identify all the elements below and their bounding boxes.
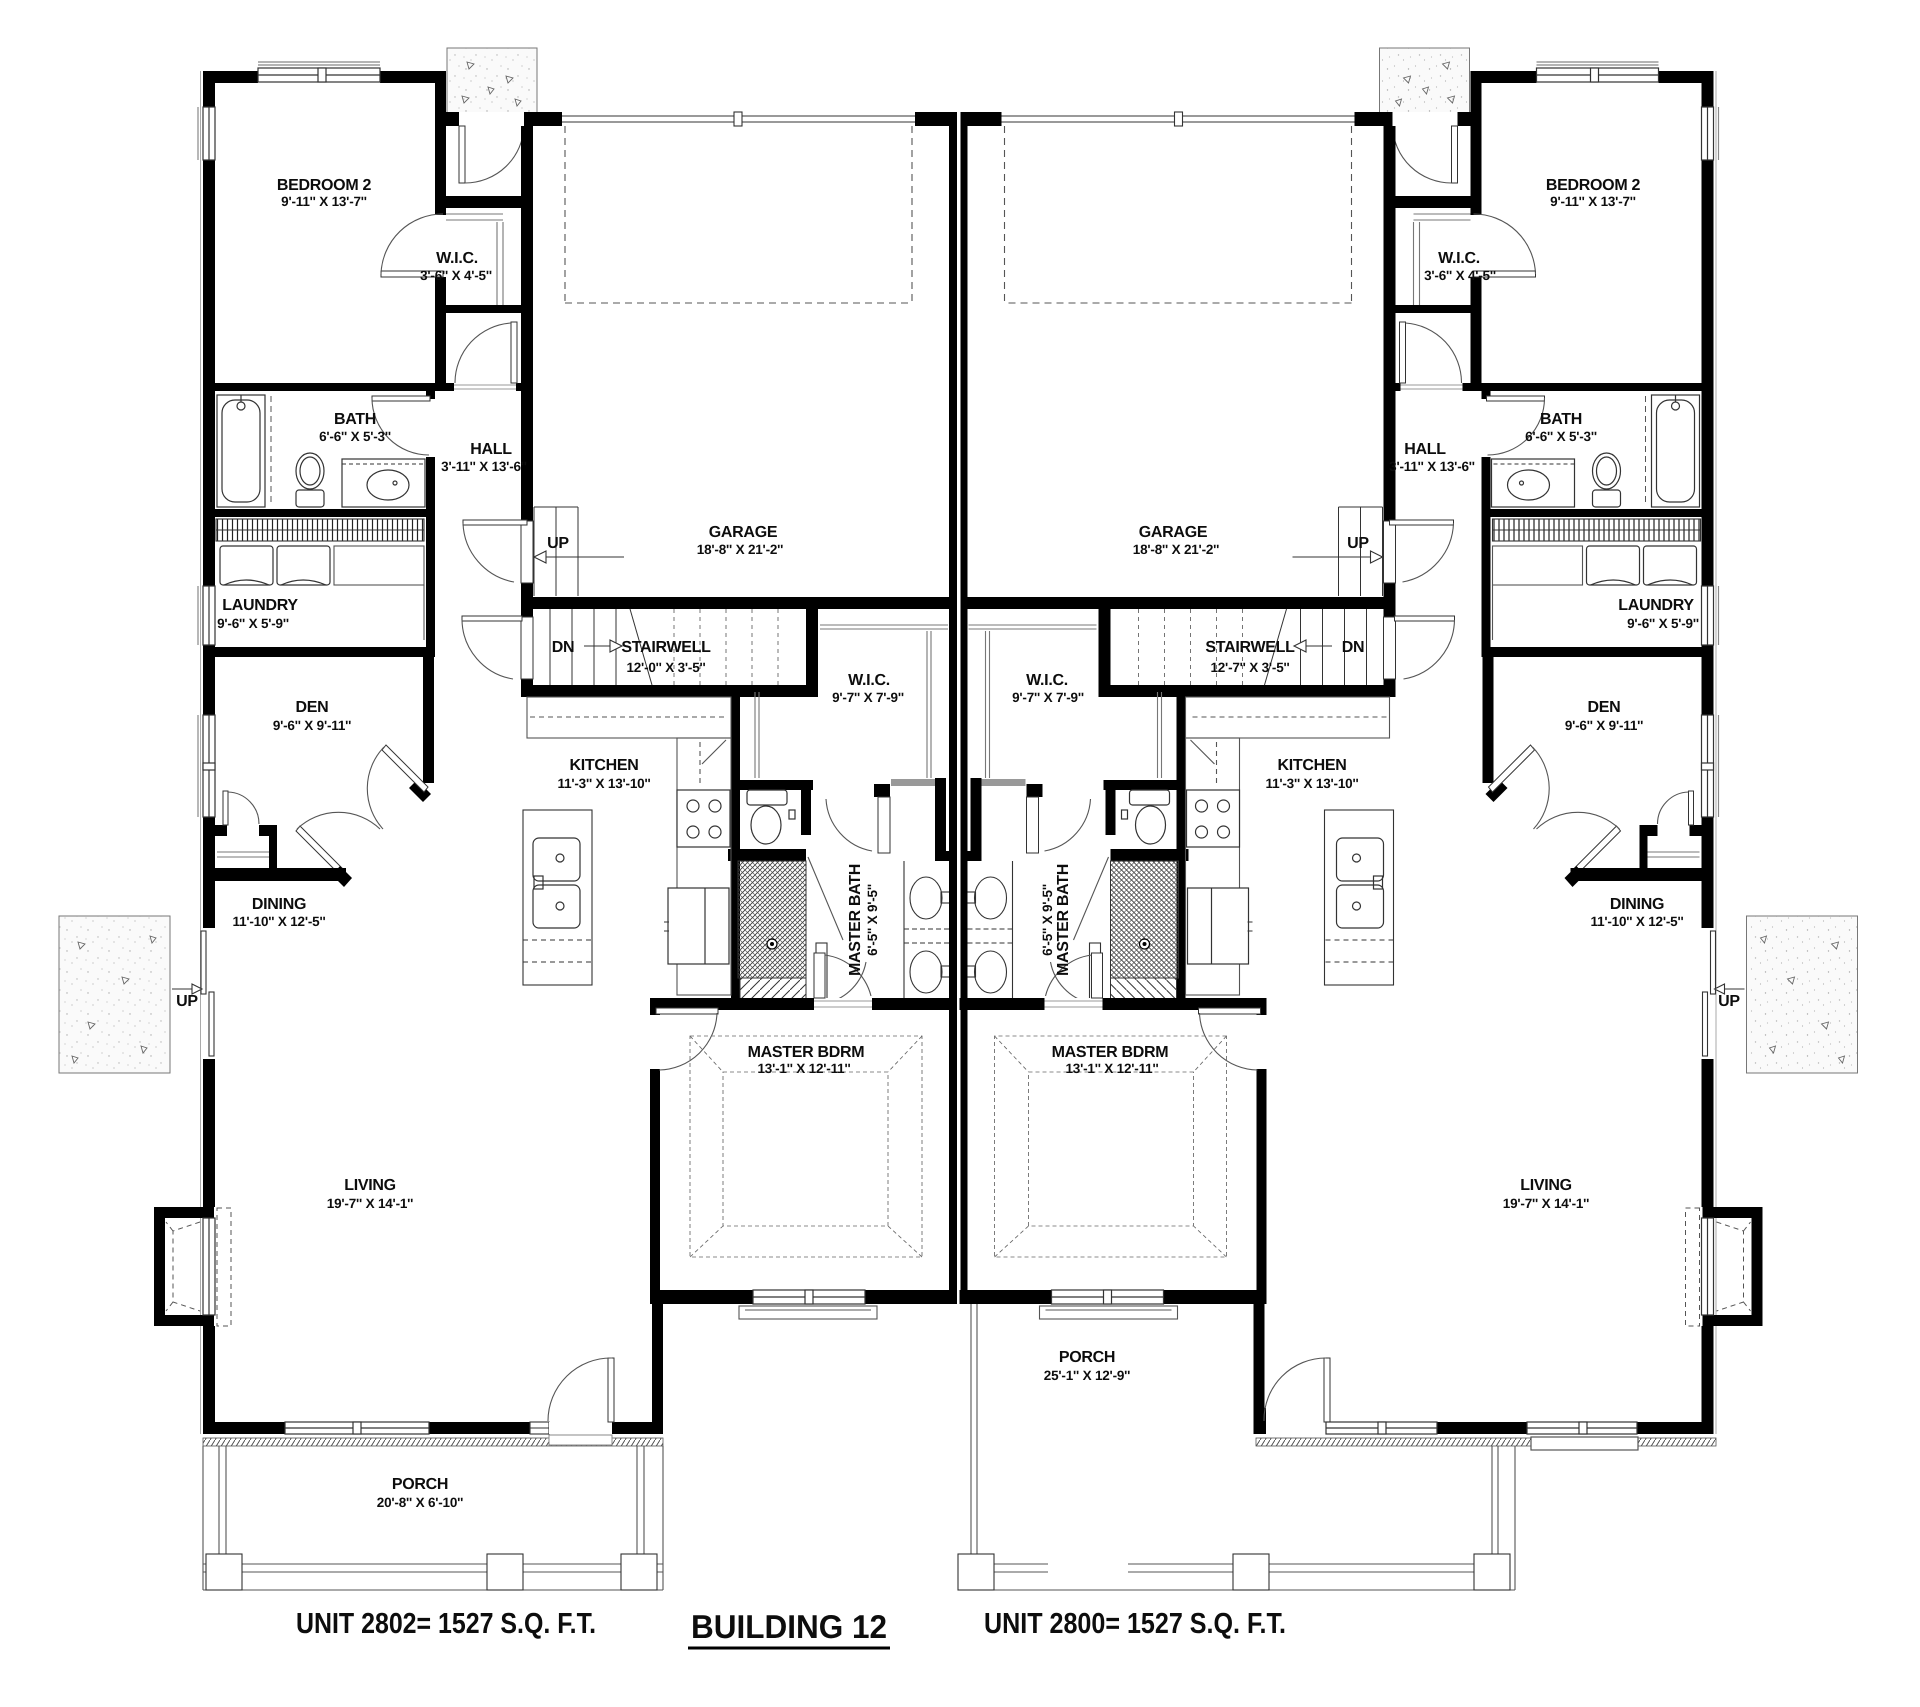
svg-text:9'-6'' X 5'-9'': 9'-6'' X 5'-9'': [1627, 616, 1699, 631]
svg-text:DN: DN: [552, 639, 575, 656]
svg-text:UP: UP: [1718, 993, 1740, 1010]
svg-text:W.I.C.: W.I.C.: [848, 672, 890, 689]
svg-text:MASTER BDRM: MASTER BDRM: [1052, 1044, 1169, 1061]
svg-text:18'-8'' X 21'-2'': 18'-8'' X 21'-2'': [1133, 542, 1219, 557]
svg-text:STAIRWELL: STAIRWELL: [621, 639, 711, 656]
svg-text:19'-7'' X 14'-1'': 19'-7'' X 14'-1'': [327, 1196, 413, 1211]
svg-text:UNIT 2802= 1527 S.Q. F.T.: UNIT 2802= 1527 S.Q. F.T.: [296, 1608, 596, 1640]
svg-text:11'-3'' X 13'-10'': 11'-3'' X 13'-10'': [558, 776, 651, 791]
svg-text:9'-11'' X 13'-7'': 9'-11'' X 13'-7'': [1550, 194, 1636, 209]
svg-text:MASTER BATH: MASTER BATH: [1055, 864, 1072, 976]
svg-text:UNIT 2800= 1527 S.Q. F.T.: UNIT 2800= 1527 S.Q. F.T.: [984, 1608, 1286, 1640]
svg-text:MASTER BATH: MASTER BATH: [847, 864, 864, 976]
svg-text:KITCHEN: KITCHEN: [1277, 757, 1346, 774]
svg-text:PORCH: PORCH: [1059, 1349, 1115, 1366]
svg-text:UP: UP: [547, 535, 569, 552]
svg-text:18'-8'' X 21'-2'': 18'-8'' X 21'-2'': [697, 542, 783, 557]
svg-text:6'-5'' X 9'-5'': 6'-5'' X 9'-5'': [1040, 884, 1055, 956]
svg-text:25'-1'' X 12'-9'': 25'-1'' X 12'-9'': [1044, 1368, 1130, 1383]
svg-text:UP: UP: [176, 993, 198, 1010]
svg-text:6'-5'' X 9'-5'': 6'-5'' X 9'-5'': [865, 884, 880, 956]
svg-text:11'-10'' X 12'-5'': 11'-10'' X 12'-5'': [233, 914, 326, 929]
svg-text:12'-0'' X 3'-5'': 12'-0'' X 3'-5'': [626, 660, 705, 675]
svg-text:12'-7'' X 3'-5'': 12'-7'' X 3'-5'': [1210, 660, 1289, 675]
svg-text:W.I.C.: W.I.C.: [436, 250, 478, 267]
svg-text:LAUNDRY: LAUNDRY: [1618, 597, 1694, 614]
svg-text:MASTER BDRM: MASTER BDRM: [748, 1044, 865, 1061]
svg-text:DEN: DEN: [296, 699, 329, 716]
svg-text:UP: UP: [1347, 535, 1369, 552]
svg-text:BEDROOM 2: BEDROOM 2: [1546, 177, 1641, 194]
svg-text:3'-11'' X 13'-6'': 3'-11'' X 13'-6'': [441, 459, 527, 474]
svg-text:STAIRWELL: STAIRWELL: [1205, 639, 1295, 656]
svg-text:GARAGE: GARAGE: [709, 524, 778, 541]
svg-text:9'-6'' X 9'-11'': 9'-6'' X 9'-11'': [273, 718, 351, 733]
svg-text:9'-6'' X 9'-11'': 9'-6'' X 9'-11'': [1565, 718, 1643, 733]
svg-text:3'-11'' X 13'-6'': 3'-11'' X 13'-6'': [1389, 459, 1475, 474]
svg-text:BATH: BATH: [1540, 411, 1582, 428]
svg-text:9'-7'' X 7'-9'': 9'-7'' X 7'-9'': [832, 690, 904, 705]
svg-text:6'-6'' X 5'-3'': 6'-6'' X 5'-3'': [1525, 429, 1597, 444]
svg-text:LAUNDRY: LAUNDRY: [222, 597, 298, 614]
svg-text:KITCHEN: KITCHEN: [569, 757, 638, 774]
svg-text:DINING: DINING: [252, 896, 306, 913]
svg-text:9'-7'' X 7'-9'': 9'-7'' X 7'-9'': [1012, 690, 1084, 705]
svg-text:20'-8'' X 6'-10'': 20'-8'' X 6'-10'': [377, 1495, 463, 1510]
svg-text:DEN: DEN: [1588, 699, 1621, 716]
svg-text:HALL: HALL: [1404, 441, 1446, 458]
svg-text:BUILDING 12: BUILDING 12: [691, 1608, 887, 1645]
svg-text:HALL: HALL: [470, 441, 512, 458]
svg-text:6'-6'' X 5'-3'': 6'-6'' X 5'-3'': [319, 429, 391, 444]
svg-text:W.I.C.: W.I.C.: [1438, 250, 1480, 267]
svg-text:LIVING: LIVING: [1520, 1177, 1572, 1194]
svg-text:9'-11'' X 13'-7'': 9'-11'' X 13'-7'': [281, 194, 367, 209]
svg-text:3'-6'' X 4'-5'': 3'-6'' X 4'-5'': [1424, 268, 1496, 283]
svg-text:DINING: DINING: [1610, 896, 1664, 913]
svg-text:11'-3'' X 13'-10'': 11'-3'' X 13'-10'': [1266, 776, 1359, 791]
svg-text:BATH: BATH: [334, 411, 376, 428]
svg-text:BEDROOM 2: BEDROOM 2: [277, 177, 372, 194]
svg-text:3'-6'' X 4'-5'': 3'-6'' X 4'-5'': [420, 268, 492, 283]
svg-text:11'-10'' X 12'-5'': 11'-10'' X 12'-5'': [1591, 914, 1684, 929]
svg-text:13'-1'' X 12'-11'': 13'-1'' X 12'-11'': [758, 1061, 851, 1076]
svg-text:GARAGE: GARAGE: [1139, 524, 1208, 541]
svg-text:DN: DN: [1342, 639, 1365, 656]
svg-text:LIVING: LIVING: [344, 1177, 396, 1194]
svg-text:W.I.C.: W.I.C.: [1026, 672, 1068, 689]
svg-text:PORCH: PORCH: [392, 1476, 448, 1493]
svg-text:9'-6'' X 5'-9'': 9'-6'' X 5'-9'': [217, 616, 289, 631]
svg-text:19'-7'' X 14'-1'': 19'-7'' X 14'-1'': [1503, 1196, 1589, 1211]
svg-text:13'-1'' X 12'-11'': 13'-1'' X 12'-11'': [1066, 1061, 1159, 1076]
